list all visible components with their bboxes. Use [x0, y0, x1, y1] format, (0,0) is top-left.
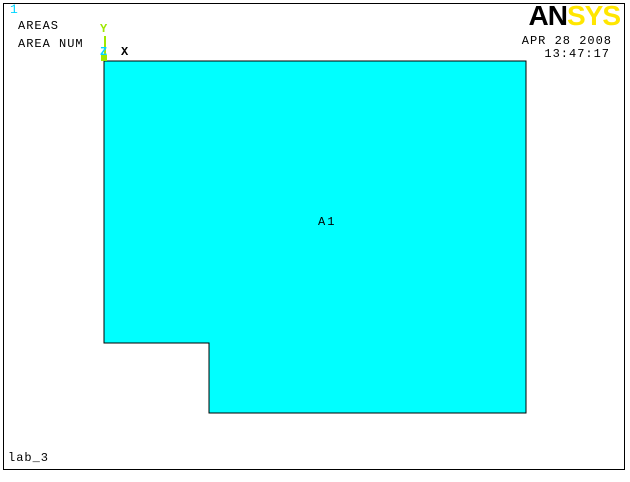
ansys-graphics-window: A1 1 AREAS AREA NUM Y Z X ANSYS APR 28 2… [0, 0, 630, 482]
annotation-area-num: AREA NUM [18, 38, 84, 50]
area-a1-polygon[interactable] [104, 61, 526, 413]
date-text: APR 28 2008 [522, 35, 612, 47]
ansys-logo-black-part: AN [529, 0, 567, 31]
triad-y-label: Y [100, 23, 107, 35]
triad-x-label: X [121, 46, 128, 58]
annotation-areas: AREAS [18, 20, 59, 32]
area-label: A1 [318, 216, 336, 228]
ansys-logo-yellow-part: SYS [567, 0, 620, 31]
triad-z-label: Z [100, 46, 107, 58]
ansys-logo: ANSYS [529, 2, 620, 30]
model-viewport [0, 0, 630, 482]
footer-label: lab_3 [8, 452, 49, 464]
plot-number: 1 [10, 4, 18, 16]
time-text: 13:47:17 [544, 48, 610, 60]
